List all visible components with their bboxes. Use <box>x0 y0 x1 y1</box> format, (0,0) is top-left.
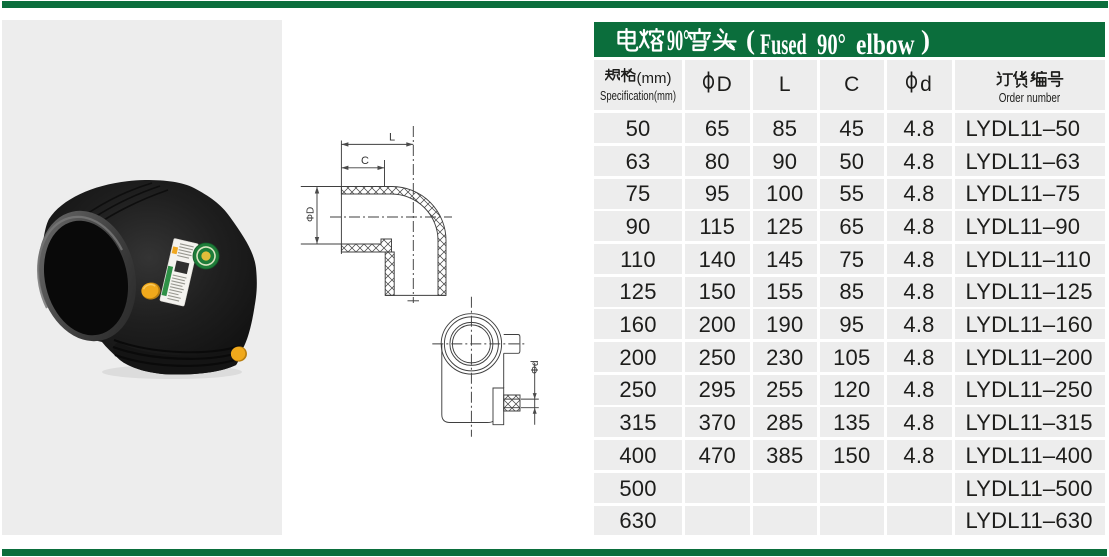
svg-text:ΦD: ΦD <box>306 207 317 222</box>
svg-text:C: C <box>361 155 369 167</box>
svg-text:Φd: Φd <box>530 360 541 374</box>
svg-text:L: L <box>389 132 395 144</box>
